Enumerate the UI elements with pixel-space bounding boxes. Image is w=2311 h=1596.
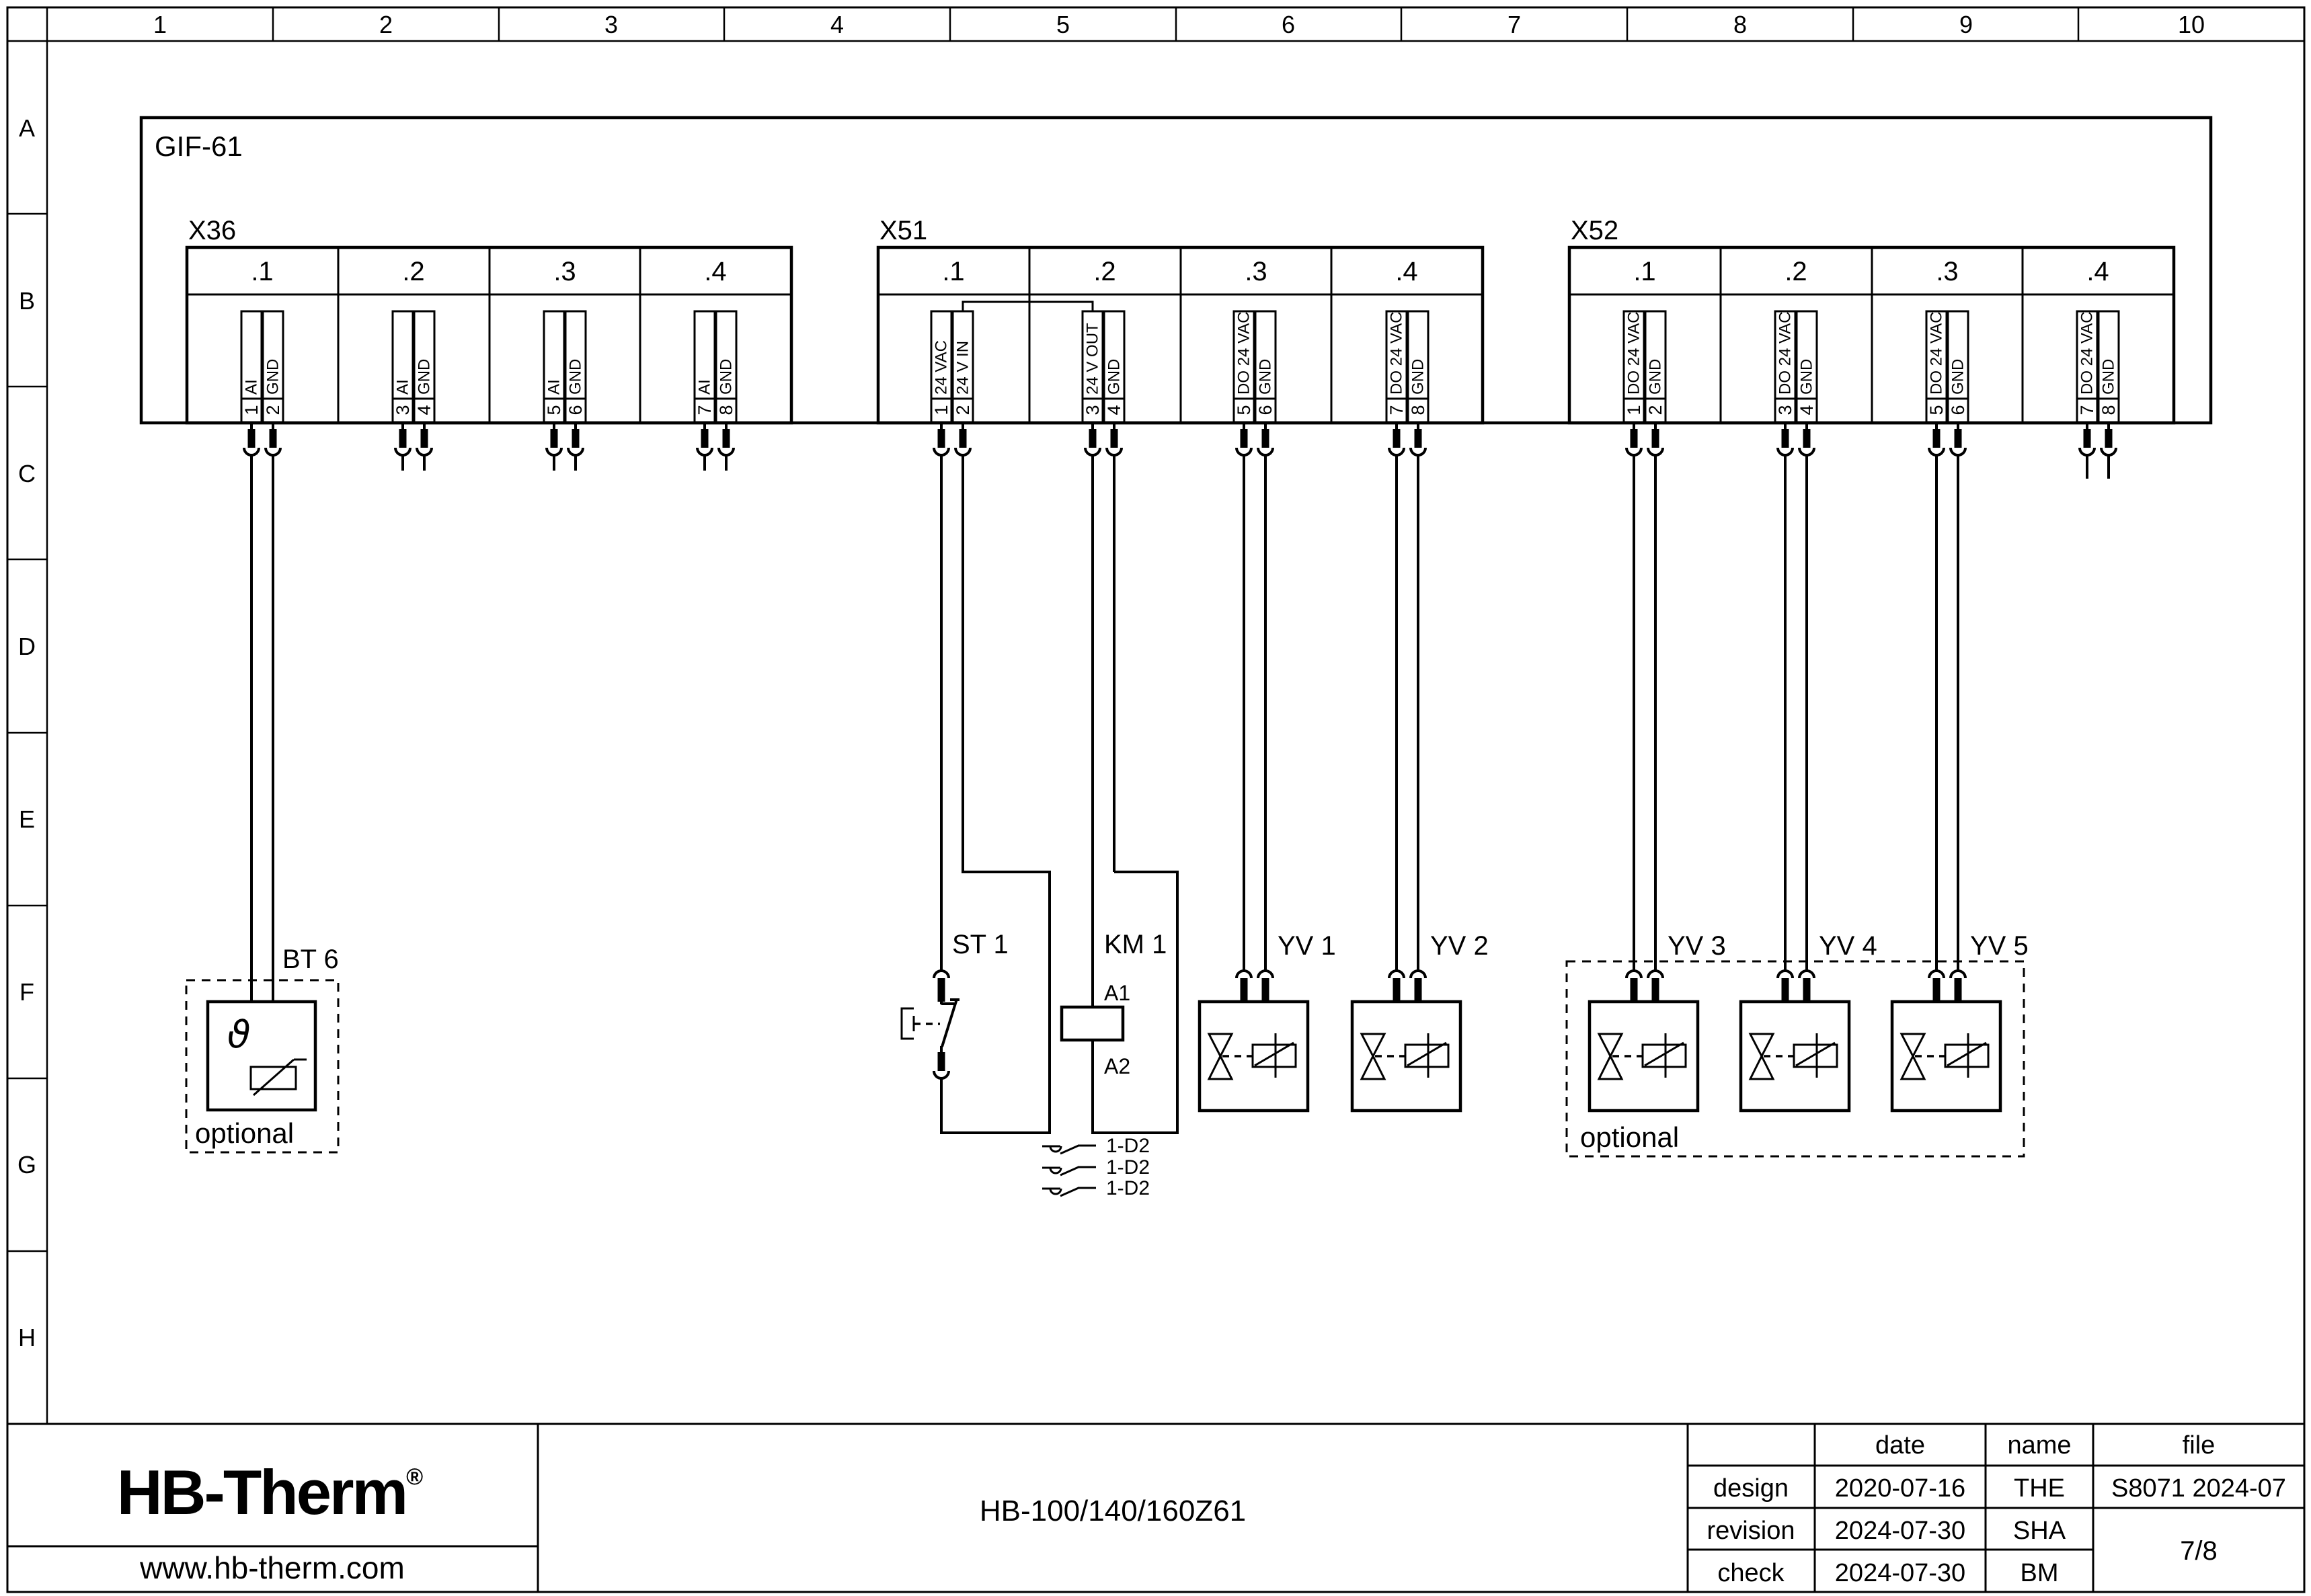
solenoid-valve-icon [1590, 1002, 1698, 1111]
coil-icon [1062, 1007, 1123, 1040]
grid-col-label: 4 [830, 11, 844, 38]
grid-col-label: 8 [1733, 11, 1747, 38]
svg-text:DO 24 VAC: DO 24 VAC [1235, 311, 1253, 395]
group-label: .4 [2086, 257, 2109, 286]
component-label: YV 4 [1819, 931, 1877, 961]
grid-row-label: G [17, 1151, 36, 1179]
svg-text:3: 3 [393, 405, 413, 415]
coil-terminal-a2: A2 [1104, 1054, 1130, 1078]
grid-col-label: 2 [379, 11, 393, 38]
svg-text:4: 4 [1797, 405, 1817, 415]
svg-text:AI: AI [545, 379, 563, 395]
svg-text:1: 1 [241, 405, 262, 415]
block-name: X52 [1571, 216, 1618, 245]
design-name: THE [2014, 1474, 2065, 1503]
grid-col-label: 7 [1507, 11, 1521, 38]
grid-col-label: 5 [1056, 11, 1070, 38]
schematic-sheet: 1 2 3 4 5 6 7 8 9 10 A B C D E F G H [0, 0, 2311, 1596]
grid-row-label: B [19, 287, 35, 315]
col-header-name: name [2007, 1431, 2071, 1460]
grid-row-label: F [19, 978, 34, 1006]
svg-text:DO 24 VAC: DO 24 VAC [1776, 311, 1795, 395]
solenoid-valve-icon [1892, 1002, 2000, 1111]
svg-text:2: 2 [1645, 405, 1666, 415]
svg-text:GND: GND [1949, 359, 1967, 395]
row-label-design: design [1713, 1474, 1789, 1503]
svg-text:6: 6 [1948, 405, 1968, 415]
svg-text:7: 7 [695, 405, 715, 415]
contact-ref: 1-D2 [1106, 1135, 1150, 1157]
svg-text:GND: GND [1257, 359, 1275, 395]
grid-row-label: D [18, 633, 36, 660]
svg-text:5: 5 [1234, 405, 1254, 415]
block-name: X36 [188, 216, 236, 245]
company-logo: HB-Therm® [117, 1457, 423, 1527]
solenoid-valve-icon [1741, 1002, 1849, 1111]
unit-label: GIF-61 [155, 130, 243, 162]
svg-text:4: 4 [1104, 405, 1124, 415]
svg-text:GND: GND [717, 359, 736, 395]
component-label: ST 1 [952, 930, 1009, 959]
group-label: .1 [942, 257, 964, 286]
group-label: .3 [1936, 257, 1958, 286]
svg-text:2: 2 [263, 405, 283, 415]
terminal-block-x51: X51 .1 .2 .3 .4 24 VAC 1 24 V IN 2 24 V … [878, 216, 1483, 423]
check-name: BM [2021, 1559, 2059, 1587]
svg-text:GND: GND [567, 359, 585, 395]
grid-row-label: E [19, 805, 35, 833]
file-value: S8071 2024-07 [2111, 1474, 2286, 1503]
component-label: YV 5 [1970, 931, 2029, 961]
terminal-block-x52: X52 .1 .2 .3 .4 DO 24 VAC 1 GND 2 DO 24 … [1569, 216, 2174, 423]
col-header-file: file [2183, 1431, 2216, 1460]
temperature-icon: ϑ [227, 1013, 251, 1057]
svg-text:GND: GND [2100, 359, 2118, 395]
row-label-check: check [1717, 1559, 1785, 1587]
svg-text:24 VAC: 24 VAC [933, 340, 951, 395]
company-website: www.hb-therm.com [139, 1550, 405, 1585]
svg-text:GND: GND [416, 359, 434, 395]
component-label: YV 3 [1668, 931, 1726, 961]
coil-terminal-a1: A1 [1104, 981, 1130, 1005]
component-label: YV 2 [1430, 931, 1489, 961]
group-label: .3 [1245, 257, 1267, 286]
group-label: .2 [402, 257, 424, 286]
svg-text:3: 3 [1775, 405, 1795, 415]
svg-text:5: 5 [544, 405, 564, 415]
contact-ref: 1-D2 [1106, 1156, 1150, 1179]
svg-text:7: 7 [1386, 405, 1407, 415]
component-label: YV 1 [1278, 931, 1336, 961]
svg-text:1: 1 [931, 405, 951, 415]
svg-text:DO 24 VAC: DO 24 VAC [2078, 311, 2097, 395]
terminal-block-x36: X36 .1 .2 .3 .4 AI 1 GND 2 AI 3 GND [187, 216, 791, 423]
optional-label: optional [1580, 1121, 1679, 1153]
grid-col-label: 10 [2178, 11, 2205, 38]
group-label: .3 [553, 257, 576, 286]
grid-row-label: C [18, 460, 36, 487]
svg-text:8: 8 [1408, 405, 1428, 415]
svg-text:7: 7 [2077, 405, 2097, 415]
svg-text:GND: GND [1105, 359, 1124, 395]
grid-col-label: 3 [604, 11, 618, 38]
group-label: .4 [704, 257, 726, 286]
svg-text:AI: AI [243, 379, 261, 395]
group-label: .1 [251, 257, 273, 286]
svg-text:GND: GND [1647, 359, 1665, 395]
model-number: HB-100/140/160Z61 [980, 1494, 1246, 1527]
check-date: 2024-07-30 [1835, 1559, 1965, 1587]
design-date: 2020-07-16 [1835, 1474, 1965, 1503]
svg-text:DO 24 VAC: DO 24 VAC [1388, 311, 1406, 395]
svg-text:DO 24 VAC: DO 24 VAC [1625, 311, 1643, 395]
col-header-date: date [1875, 1431, 1925, 1460]
svg-text:GND: GND [1409, 359, 1427, 395]
row-label-revision: revision [1707, 1517, 1795, 1545]
svg-text:DO 24 VAC: DO 24 VAC [1928, 311, 1946, 395]
svg-text:AI: AI [394, 379, 412, 395]
svg-text:8: 8 [2099, 405, 2119, 415]
component-label: KM 1 [1104, 930, 1167, 959]
svg-text:AI: AI [696, 379, 714, 395]
optional-label: optional [195, 1117, 294, 1149]
svg-text:8: 8 [716, 405, 736, 415]
group-label: .2 [1093, 257, 1115, 286]
sheet-background [0, 0, 2311, 1596]
page-number: 7/8 [2180, 1536, 2218, 1566]
grid-row-label: A [19, 114, 35, 142]
grid-col-label: 1 [153, 11, 167, 38]
svg-text:2: 2 [953, 405, 973, 415]
contact-ref: 1-D2 [1106, 1177, 1150, 1199]
group-label: .2 [1785, 257, 1807, 286]
block-name: X51 [879, 216, 927, 245]
component-label: BT 6 [282, 945, 339, 974]
svg-text:GND: GND [264, 359, 282, 395]
svg-text:5: 5 [1926, 405, 1947, 415]
grid-col-label: 9 [1959, 11, 1973, 38]
solenoid-valve-icon [1200, 1002, 1308, 1111]
group-label: .1 [1633, 257, 1655, 286]
svg-text:3: 3 [1083, 405, 1103, 415]
revision-name: SHA [2013, 1517, 2066, 1545]
svg-text:24 V OUT: 24 V OUT [1084, 323, 1102, 395]
svg-text:4: 4 [414, 405, 434, 415]
svg-text:24 V IN: 24 V IN [954, 341, 972, 395]
svg-text:6: 6 [565, 405, 586, 415]
grid-col-label: 6 [1282, 11, 1295, 38]
solenoid-valve-icon [1352, 1002, 1460, 1111]
revision-date: 2024-07-30 [1835, 1517, 1965, 1545]
svg-text:1: 1 [1624, 405, 1644, 415]
grid-row-label: H [18, 1324, 36, 1351]
svg-text:GND: GND [1798, 359, 1816, 395]
svg-text:6: 6 [1255, 405, 1276, 415]
group-label: .4 [1395, 257, 1417, 286]
